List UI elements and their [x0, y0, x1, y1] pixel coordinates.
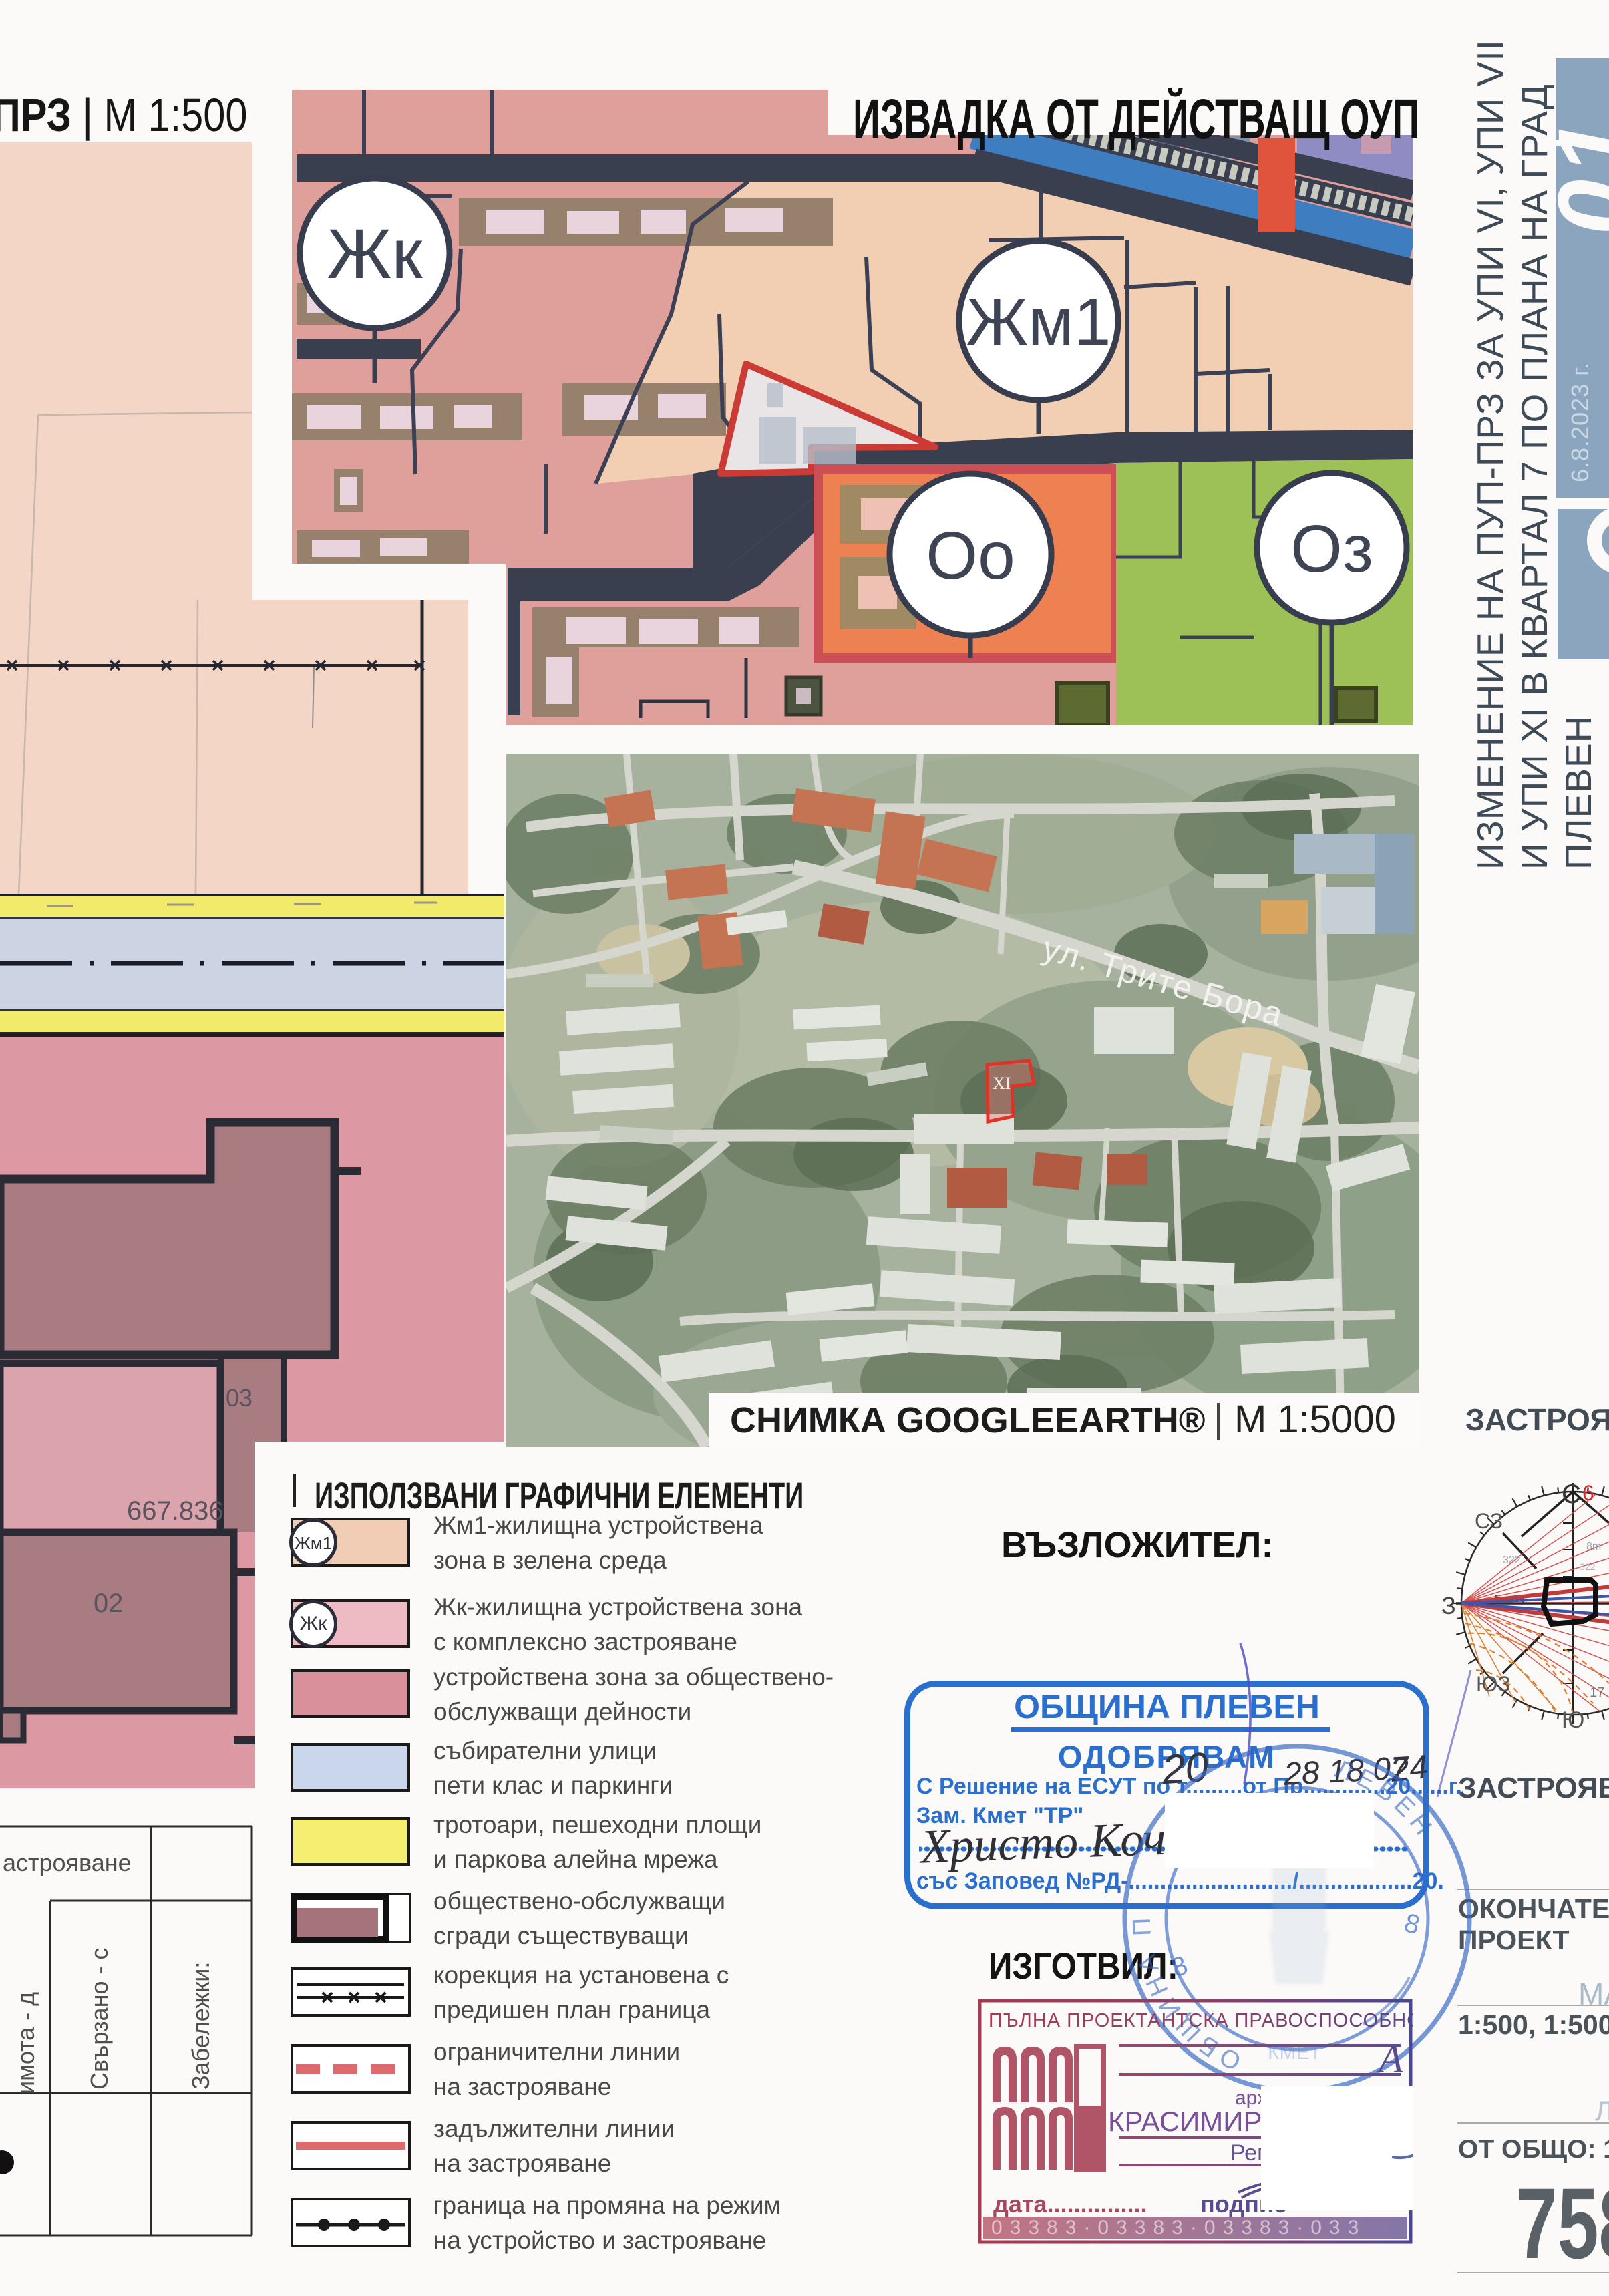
svg-text:СНИМКА GOOGLEEARTH®: СНИМКА GOOGLEEARTH® — [730, 1400, 1206, 1440]
svg-text:Оо: Оо — [926, 518, 1015, 593]
svg-text:З: З — [1441, 1592, 1456, 1619]
svg-text:667.836: 667.836 — [127, 1496, 224, 1526]
svg-text:6: 6 — [1582, 1483, 1594, 1505]
svg-text:Ю: Ю — [1562, 1707, 1584, 1732]
svg-text:322: 322 — [1503, 1554, 1521, 1566]
svg-text:XI: XI — [993, 1074, 1011, 1093]
svg-text:дата...............: дата............... — [993, 2190, 1147, 2218]
svg-text:ПЪЛНА ПРОЕКТАНТСКА ПРАВОСПОСОБ: ПЪЛНА ПРОЕКТАНТСКА ПРАВОСПОСОБНОСТ — [989, 2010, 1413, 2031]
svg-text:8: 8 — [1401, 1908, 1423, 1940]
svg-text:Оз: Оз — [1290, 512, 1373, 587]
svg-text:8m: 8m — [1586, 1541, 1601, 1552]
svg-text:03383·03383·03383·033: 03383·03383·03383·033 — [991, 2217, 1366, 2239]
svg-text:02: 02 — [94, 1589, 124, 1618]
svg-text:СЗ: СЗ — [1475, 1509, 1503, 1533]
svg-text:Жм1: Жм1 — [966, 285, 1111, 359]
svg-text:А: А — [1376, 2037, 1403, 2081]
svg-text:ЮЗ: ЮЗ — [1476, 1672, 1511, 1696]
svg-text:03: 03 — [226, 1384, 252, 1412]
svg-text:С: С — [1562, 1483, 1581, 1509]
svg-text:17: 17 — [1590, 1685, 1604, 1700]
svg-text:8: 8 — [1168, 1951, 1192, 1983]
svg-text:322: 322 — [1580, 1561, 1596, 1572]
svg-text:М 1:5000: М 1:5000 — [1234, 1398, 1396, 1441]
